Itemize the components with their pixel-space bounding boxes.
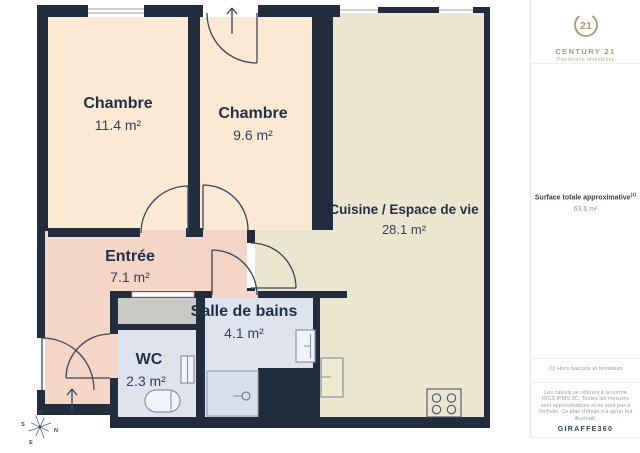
- room-area-label: 7.1 m²: [110, 269, 150, 285]
- compass-s-label: S: [21, 422, 25, 428]
- closet-doors: [132, 292, 194, 297]
- surface-footnote-marker: (1): [631, 192, 637, 197]
- room-area-label: 11.4 m²: [95, 117, 142, 133]
- room-area-label: 2.3 m²: [126, 373, 166, 389]
- room-cuisine-floor: [255, 230, 333, 291]
- room-name-label: Chambre: [83, 95, 152, 112]
- radiator-icon: [181, 356, 194, 383]
- footnote-section: (1) Hors balcons et terrasses: [531, 358, 640, 372]
- compass-n-label: N: [54, 428, 58, 434]
- info-sidebar: 21 CENTURY 21 Patrimoine Immobilier Surf…: [530, 0, 640, 438]
- shower-icon: [207, 371, 258, 416]
- surface-section: Surface totale approximative(1) 63.6 m²: [531, 192, 640, 213]
- footnote-text: (1) Hors balcons et terrasses: [535, 366, 636, 372]
- century21-logo: 21 CENTURY 21 Patrimoine Immobilier: [531, 0, 640, 64]
- agency-name: Patrimoine Immobilier: [531, 57, 640, 63]
- floor-plan: Chambre 11.4 m² Chambre 9.6 m² Cuisine /…: [0, 0, 530, 453]
- surface-value: 63.6 m²: [531, 206, 640, 213]
- room-name-label: Entrée: [105, 248, 155, 265]
- kitchen-sink-icon: [321, 358, 343, 397]
- giraffe360-wordmark: GIRAFFE360: [538, 426, 633, 433]
- window: [88, 5, 144, 17]
- legal-text: Les calculs se réfèrent à la norme RICS …: [538, 390, 633, 422]
- bathroom-sink-icon: [296, 330, 315, 362]
- compass-w-label: W: [37, 410, 43, 416]
- surface-label-text: Surface totale approximative: [535, 194, 631, 201]
- doorway: [110, 334, 118, 378]
- room-name-label: WC: [136, 351, 163, 368]
- room-name-label: Salle de bains: [191, 303, 298, 320]
- doorway: [212, 291, 258, 298]
- legal-section: Les calculs se réfèrent à la norme RICS …: [531, 382, 640, 433]
- room-area-label: 28.1 m²: [382, 222, 427, 237]
- room-area-label: 4.1 m²: [224, 325, 264, 341]
- room-area-label: 9.6 m²: [233, 127, 273, 143]
- room-cuisine-floor: [320, 291, 484, 417]
- surface-label: Surface totale approximative(1): [531, 192, 640, 201]
- compass-icon: W S N E: [21, 410, 58, 446]
- century21-ring-icon: 21: [570, 9, 602, 41]
- closet: [118, 298, 196, 324]
- room-chambre-2-floor: [198, 17, 314, 231]
- century21-wordmark: CENTURY 21: [531, 47, 640, 56]
- century21-number: 21: [580, 20, 592, 32]
- compass-e-label: E: [29, 440, 33, 446]
- toilet-icon: [145, 390, 180, 412]
- room-name-label: Cuisine / Espace de vie: [329, 202, 479, 217]
- room-name-label: Chambre: [218, 105, 287, 122]
